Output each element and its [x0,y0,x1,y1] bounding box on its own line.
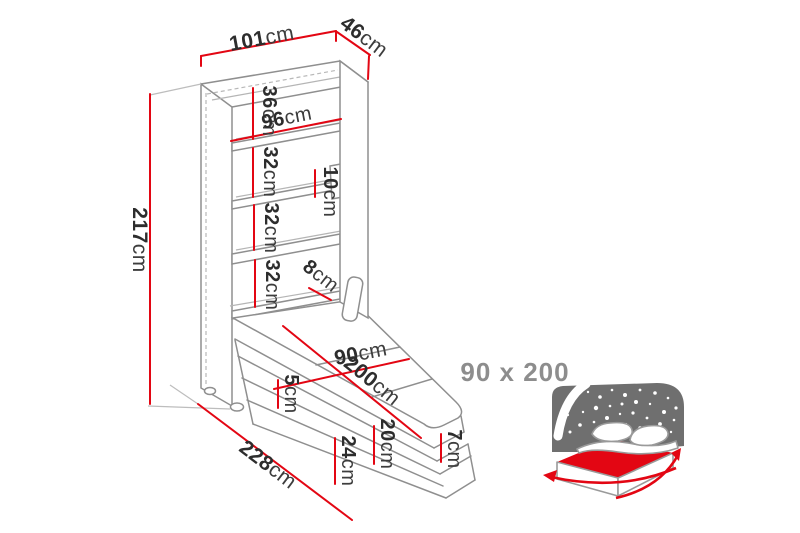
dim-rail-height-label: 10cm [319,167,341,218]
diagram-svg: 101cm 46cm 36cm 96cm 32cm 10cm 32cm 32cm… [0,0,800,533]
frame-far-corner-b [468,444,475,480]
dim-tick-depth [368,56,369,79]
dim-cabinet-width-label: 101cm [227,21,296,56]
cabinet-foot-front [231,403,244,411]
dim-compartment-2-label: 32cm [259,147,281,198]
dim-frame-rim-label: 5cm [280,374,302,413]
dim-cabinet-height-label: 217cm [128,207,151,273]
projection-ext [170,385,198,404]
size-callout: 90 x 200 [460,357,684,498]
icon-width-arrowhead [543,470,557,482]
frame-far-cap-4 [446,480,475,498]
dim-compartment-3-label: 32cm [260,203,282,254]
dim-platform-height-label: 7cm [443,429,465,468]
wall-bed-dimension-diagram: 101cm 46cm 36cm 96cm 32cm 10cm 32cm 32cm… [0,0,800,533]
dim-total-projection-label: 228cm [235,436,301,494]
size-label: 90 x 200 [460,357,569,387]
cabinet-foot-back [205,388,216,395]
cabinet-left-panel [201,84,232,406]
height-ext-top [150,84,201,95]
dim-frame-depth-label: 24cm [337,436,359,487]
bed-icon [543,383,684,498]
dim-mattress-thickness-label: 20cm [376,419,398,470]
dim-compartment-4-label: 32cm [261,260,283,311]
shelf-3 [232,234,340,264]
height-ext-bottom [148,406,230,409]
